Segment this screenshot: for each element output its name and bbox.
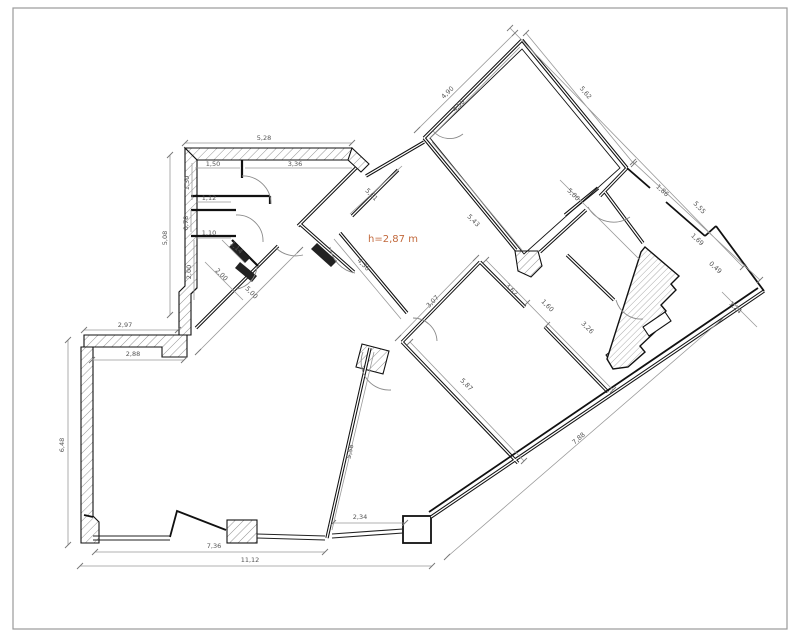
dim-label-150: 1,50: [206, 160, 220, 168]
dim-label-112: 1,12: [202, 194, 216, 202]
dim-label-500b: 5,00: [565, 187, 581, 203]
room-inner-face: [430, 49, 620, 254]
hatched-walls: [81, 148, 632, 543]
door-arc-hall: [276, 248, 303, 256]
dim-label-078: 0,78: [182, 216, 190, 230]
terrace-steps: [607, 247, 679, 369]
height-annotation: h=2,87 m: [368, 234, 418, 245]
dim-label-326: 3,26: [579, 320, 595, 336]
dim-label-555: 5,55: [692, 200, 708, 216]
wall-outlines: [196, 40, 764, 538]
chimney-block: [515, 251, 542, 277]
dim-label-362: 3,62: [503, 282, 519, 298]
dim-label-160: 1,60: [539, 298, 555, 314]
door-arc-room-a: [242, 176, 271, 204]
dim-label-508: 5,08: [161, 231, 169, 245]
dim-label-587: 5,87: [458, 377, 474, 393]
dim-label-558: 5,58: [345, 444, 356, 460]
dim-label-200b: 2,00: [213, 267, 229, 283]
dim-label-186: 1,86: [654, 183, 670, 199]
door-arc-center-room: [413, 318, 437, 341]
dim-label-200a: 2,00: [185, 265, 193, 279]
door-arcs: [236, 131, 643, 390]
dim-label-648: 6,48: [58, 438, 66, 452]
door-arc-top-room: [433, 131, 463, 139]
dim-label-543: 5,43: [465, 213, 481, 229]
floor-plan-drawing: 5,28 5,08 1,50 3,36 1,30 1,12 0,78 1,10 …: [0, 0, 800, 637]
dim-label-234: 2,34: [353, 513, 367, 521]
pillar-white: [403, 516, 431, 543]
wall-cores: [196, 40, 764, 538]
dim-label-297: 2,97: [118, 321, 132, 329]
pillar-hatched: [227, 520, 257, 543]
door-arc-room-b: [236, 215, 263, 242]
dim-label-130: 1,30: [183, 176, 191, 190]
dim-label-110: 1,10: [202, 229, 216, 237]
wall-top-band: [185, 148, 352, 160]
partition-walls: [191, 160, 270, 266]
dim-label-336: 3,36: [288, 160, 302, 168]
wall-lower-left-band: [81, 347, 99, 543]
dim-label-528: 5,28: [257, 134, 271, 142]
dim-label-500a: 5,00: [243, 285, 259, 301]
dim-label-490: 4,90: [440, 85, 456, 101]
dim-label-049: 0,49: [707, 260, 723, 276]
floor-plan-sheet: 5,28 5,08 1,50 3,36 1,30 1,12 0,78 1,10 …: [0, 0, 800, 637]
dim-label-288: 2,88: [126, 350, 140, 358]
dim-label-1112: 11,12: [241, 556, 260, 564]
door-leaves: [229, 242, 337, 282]
dim-label-788: 7,88: [571, 431, 587, 447]
dim-label-736: 7,36: [207, 542, 221, 550]
